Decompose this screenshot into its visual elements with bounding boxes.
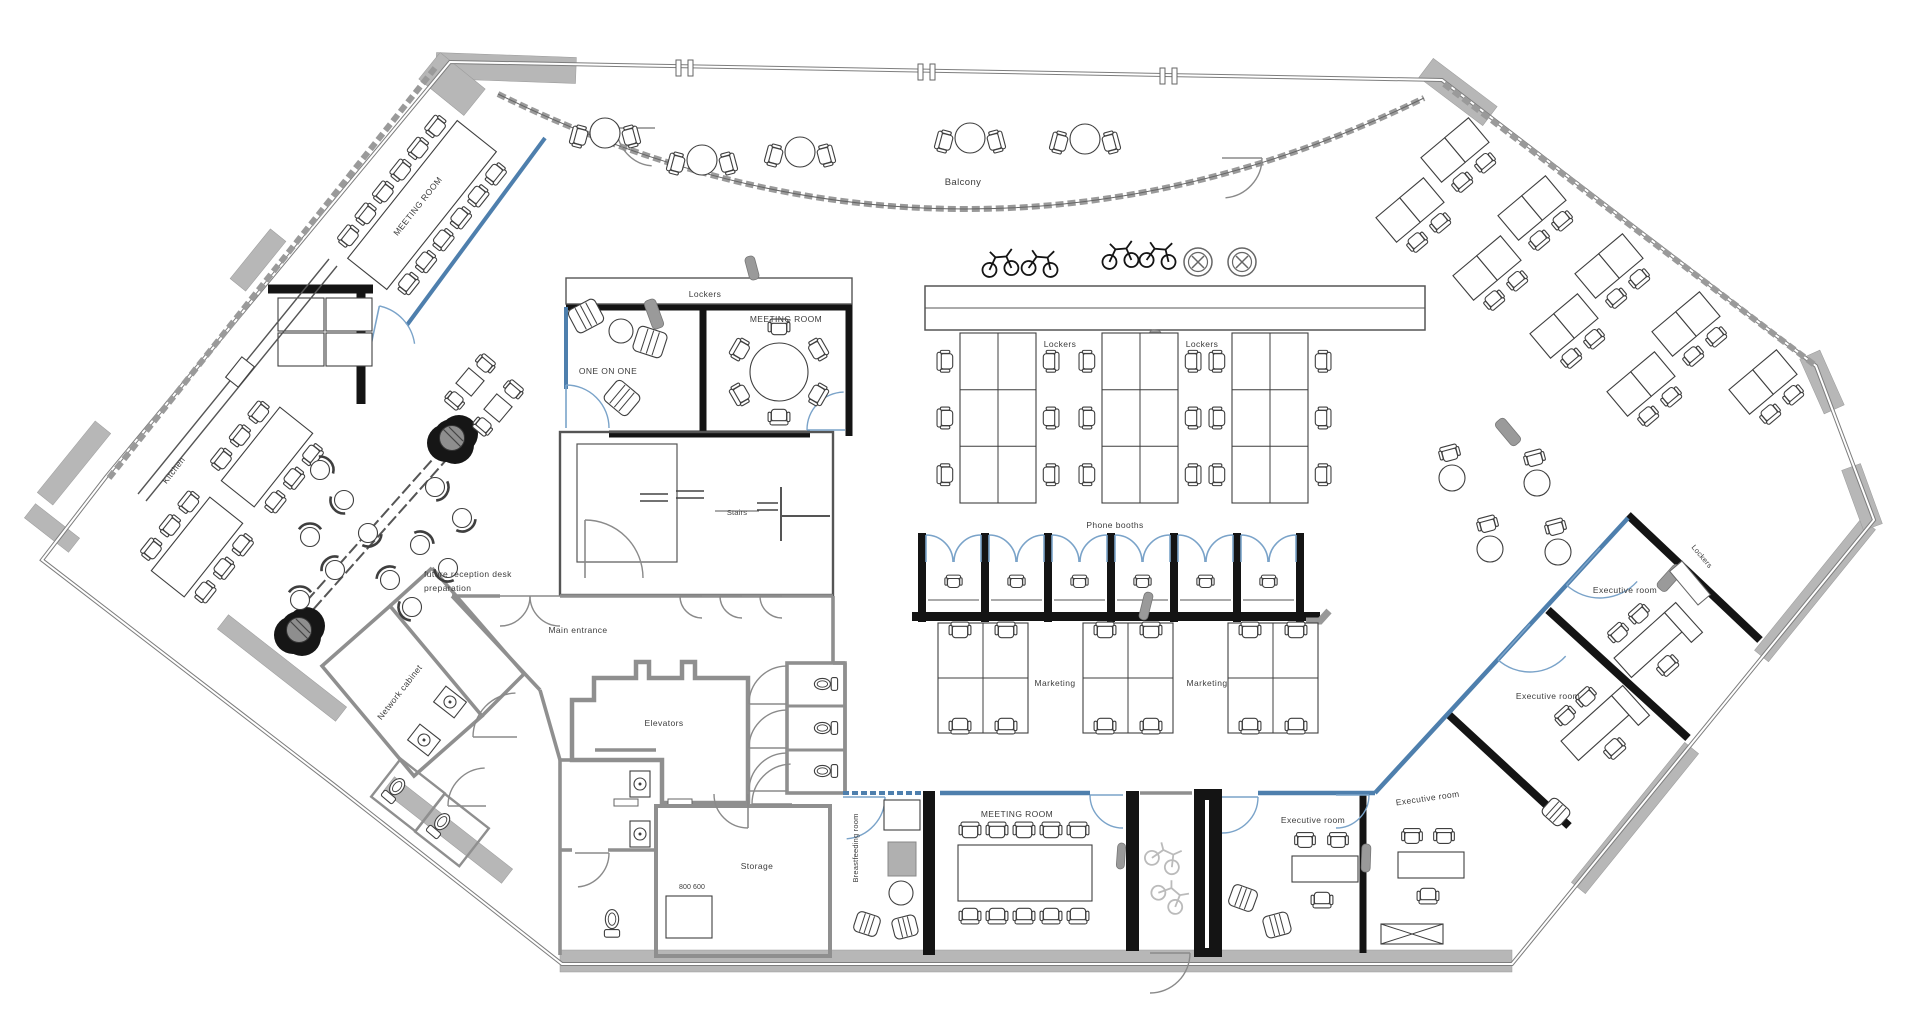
balcony-table <box>569 118 642 149</box>
label-phone-booths: Phone booths <box>1086 520 1143 530</box>
booth-divider <box>1044 533 1052 622</box>
booth-doors <box>1178 535 1233 562</box>
booth-divider <box>1233 533 1241 622</box>
chair <box>666 151 687 176</box>
label-executive-east-top: Executive room <box>1593 585 1657 595</box>
wall-meeting-south-right <box>1126 791 1139 951</box>
chair <box>501 378 525 401</box>
bicycle-icon <box>981 248 1019 277</box>
cabinet <box>326 298 372 331</box>
chair <box>1658 384 1683 409</box>
chair <box>1654 652 1681 678</box>
bicycle-icon <box>1101 240 1139 269</box>
chair <box>1581 326 1606 351</box>
folded-table-icon <box>1228 248 1256 276</box>
lounge-stool <box>426 478 449 501</box>
chair <box>1603 286 1628 311</box>
chair <box>1295 833 1316 848</box>
chair <box>1703 324 1728 349</box>
chair <box>1757 402 1782 427</box>
chair <box>1260 575 1277 587</box>
chair <box>995 622 1017 638</box>
desk-pair <box>1376 178 1457 258</box>
cabinet <box>326 333 372 366</box>
chair <box>1476 514 1500 534</box>
booth-doors <box>989 535 1044 562</box>
chair <box>937 407 953 429</box>
chair <box>816 143 837 168</box>
chair <box>1626 266 1651 291</box>
label-marketing-right: Marketing <box>1187 678 1228 688</box>
chair <box>1434 829 1455 844</box>
wall-band <box>1842 464 1883 531</box>
window-notch <box>1172 68 1177 84</box>
wall-band <box>230 229 286 291</box>
door-leaf <box>744 255 760 281</box>
label-network-cabinet: Network cabinet <box>375 663 424 722</box>
label-lockers-top: Lockers <box>689 289 722 299</box>
chair <box>1680 344 1705 369</box>
chair <box>1239 718 1261 734</box>
label-marketing-left: Marketing <box>1035 678 1076 688</box>
door-arc <box>714 794 748 828</box>
elevators-room <box>572 662 748 803</box>
wall-band <box>383 777 512 884</box>
balcony-table <box>1049 124 1122 155</box>
chair <box>728 336 752 363</box>
chair <box>728 381 752 408</box>
bicycle-icon <box>1139 240 1177 269</box>
chair <box>1079 407 1095 429</box>
label-balcony: Balcony <box>945 177 982 188</box>
balcony-table <box>764 137 837 168</box>
chair <box>1067 908 1089 924</box>
couch <box>884 800 920 830</box>
desk-pair <box>1729 350 1810 430</box>
chair <box>937 350 953 372</box>
desk-pair <box>1652 292 1733 372</box>
chair <box>1040 908 1062 924</box>
lounge-stool <box>322 557 345 580</box>
chair <box>1043 350 1059 372</box>
chair <box>1043 407 1059 429</box>
desk-bank <box>1209 333 1331 503</box>
chair <box>959 908 981 924</box>
toilet-icon <box>604 910 619 938</box>
chair <box>1101 130 1122 155</box>
chair <box>1544 517 1568 537</box>
chair <box>1134 575 1151 587</box>
desk-pair <box>1530 294 1611 374</box>
stairs-core <box>577 444 677 562</box>
floor-plan-svg: MEETING ROOM Balcony Lockers MEETING ROO… <box>0 0 1920 1035</box>
label-stairs: Stairs <box>727 508 747 517</box>
booth-doors <box>926 535 981 562</box>
desk-pair <box>1421 118 1502 198</box>
chair <box>1526 228 1551 253</box>
lounge-stool <box>330 491 353 514</box>
door-leaf <box>1361 844 1371 872</box>
chair <box>986 129 1007 154</box>
chair <box>949 622 971 638</box>
plant <box>427 415 478 464</box>
door-leaf <box>1494 417 1522 448</box>
door-arc <box>720 596 742 618</box>
chair <box>1185 350 1201 372</box>
armchair <box>1227 883 1259 912</box>
sink-icon <box>630 771 650 797</box>
door-leaf <box>1116 843 1126 869</box>
chair <box>718 151 739 176</box>
chair <box>1472 150 1497 175</box>
chair <box>1209 350 1225 372</box>
chair <box>1780 382 1805 407</box>
chair <box>1043 464 1059 486</box>
label-executive-south-right: Executive room <box>1395 789 1460 808</box>
booth-divider <box>918 533 926 622</box>
floor-plan: MEETING ROOM Balcony Lockers MEETING ROO… <box>0 0 1920 1035</box>
bicycle-icon <box>1148 874 1192 917</box>
lounge-stool <box>377 567 400 590</box>
chair <box>1427 210 1452 235</box>
storage-box <box>666 896 712 938</box>
label-main-entrance: Main entrance <box>548 625 607 635</box>
chair <box>1040 822 1062 838</box>
chair <box>959 822 981 838</box>
crate-crossed <box>1381 924 1443 944</box>
meeting-room-south-furniture <box>958 822 1092 924</box>
chair <box>1606 620 1631 645</box>
desk-pair <box>1498 176 1579 256</box>
chair <box>934 129 955 154</box>
lounge-stool <box>299 523 321 546</box>
chair <box>1008 575 1025 587</box>
exec-desk <box>1292 856 1358 882</box>
door-arc <box>566 385 609 428</box>
curved-glass-facade <box>498 94 1424 209</box>
door-arc <box>760 596 782 618</box>
chair <box>1140 622 1162 638</box>
chair <box>1079 350 1095 372</box>
wall <box>540 690 560 760</box>
side-table <box>609 319 633 343</box>
label-lockers-mid-left: Lockers <box>1044 339 1077 349</box>
marketing-desk-bank <box>1083 622 1173 734</box>
chair <box>1140 718 1162 734</box>
lounge-stool <box>411 532 434 555</box>
door-arc <box>749 666 787 704</box>
label-future-reception-2: preparation <box>424 583 471 593</box>
round-table <box>1477 536 1503 562</box>
label-breastfeeding-room: Breastfeeding room <box>851 813 860 882</box>
chair <box>1185 464 1201 486</box>
chair <box>1626 602 1651 627</box>
chair <box>1013 908 1035 924</box>
sink-icon <box>630 821 650 847</box>
chair <box>1079 464 1095 486</box>
label-elevators: Elevators <box>644 718 683 728</box>
window-notch <box>918 64 923 80</box>
toilet-icon <box>814 722 837 735</box>
exec-desk <box>1398 852 1464 878</box>
lounge-stool <box>359 524 382 547</box>
lounge-stool <box>289 586 311 609</box>
round-table <box>1524 470 1550 496</box>
chair <box>1094 718 1116 734</box>
marketing-desk-bank <box>1228 622 1318 734</box>
door-arc <box>749 710 787 748</box>
chair <box>1315 350 1331 372</box>
label-future-reception-1: future reception desk <box>424 569 512 579</box>
shell-layer <box>42 60 1874 964</box>
desk-pair <box>1607 352 1688 432</box>
door-arc <box>680 596 702 618</box>
chair <box>1185 407 1201 429</box>
chair <box>1209 464 1225 486</box>
chair <box>1239 622 1261 638</box>
chair <box>1601 735 1628 761</box>
chair <box>1209 407 1225 429</box>
label-storage: Storage <box>741 861 774 871</box>
chair <box>949 718 971 734</box>
bicycle-icon <box>1143 838 1187 877</box>
door-arc <box>843 797 885 839</box>
chair <box>1504 268 1529 293</box>
chair <box>986 908 1008 924</box>
label-kitchen: Kitchen <box>160 455 187 486</box>
exec-cluster <box>1545 668 1655 777</box>
booth-doors <box>1241 535 1296 562</box>
chair <box>806 381 830 408</box>
label-meeting-room-center: MEETING ROOM <box>750 314 822 324</box>
chair <box>1311 892 1333 908</box>
chair <box>1285 622 1307 638</box>
chair <box>1328 833 1349 848</box>
kitchen-table <box>135 484 259 610</box>
wall-breastfeeding-right <box>923 791 935 955</box>
armchair <box>891 914 919 940</box>
armchair <box>602 378 642 417</box>
folded-table-icon <box>1184 248 1212 276</box>
label-executive-south-left: Executive room <box>1281 815 1345 825</box>
chair <box>1523 448 1547 468</box>
booth-doors <box>1115 535 1170 562</box>
outer-wall <box>42 62 1874 964</box>
desk-bank <box>1079 333 1201 503</box>
chair <box>1417 888 1439 904</box>
cabinet-gray <box>888 842 916 876</box>
armchair <box>632 325 669 359</box>
chair <box>945 575 962 587</box>
chair <box>473 352 497 375</box>
label-lockers-east: Lockers <box>1690 543 1715 570</box>
desk-pair <box>1453 236 1534 316</box>
label-one-on-one: ONE ON ONE <box>579 366 637 376</box>
door-arc <box>500 596 530 626</box>
wall-band-bottom <box>560 950 1512 972</box>
window-notch <box>930 64 935 80</box>
side-table <box>889 881 913 905</box>
floor-layer <box>24 53 1882 972</box>
chair <box>1315 464 1331 486</box>
marketing-desk-bank <box>938 622 1028 734</box>
chair <box>1013 822 1035 838</box>
cabinet <box>278 298 324 331</box>
label-lockers-mid-right: Lockers <box>1186 339 1219 349</box>
exec-cluster <box>1598 585 1708 694</box>
door-arc <box>575 853 609 887</box>
booth-divider <box>1296 533 1304 622</box>
chair <box>1553 703 1578 728</box>
booth-divider <box>1170 533 1178 622</box>
booth-divider <box>981 533 989 622</box>
window-notch <box>1160 68 1165 84</box>
balcony-table <box>934 123 1007 154</box>
label-meeting-room-south: MEETING ROOM <box>981 809 1053 819</box>
chair <box>1049 130 1070 155</box>
furniture-layer <box>135 108 1810 944</box>
desk-pair <box>1575 234 1656 314</box>
stairs-room <box>560 432 833 595</box>
door-arc <box>585 520 643 578</box>
armchair <box>1262 911 1292 939</box>
wardrobe-slot <box>1205 800 1209 948</box>
chair <box>986 822 1008 838</box>
desk-bank <box>937 333 1059 503</box>
balcony-table <box>666 145 739 176</box>
bicycle-icon <box>1021 248 1059 277</box>
chair <box>937 464 953 486</box>
cabinet <box>278 333 324 366</box>
chair <box>1558 346 1583 371</box>
outer-wall-inner <box>42 62 1874 964</box>
window-notch <box>688 60 693 76</box>
chair <box>1549 208 1574 233</box>
door-arc <box>370 306 415 350</box>
chair <box>806 336 830 363</box>
round-table <box>1439 465 1465 491</box>
round-table <box>1545 539 1571 565</box>
chair <box>1635 404 1660 429</box>
toilet-icon <box>814 765 837 778</box>
round-meeting-table <box>750 343 808 401</box>
door-arc <box>1222 797 1258 833</box>
door-arc <box>1498 624 1566 672</box>
chair <box>1315 407 1331 429</box>
chair <box>1481 288 1506 313</box>
chair <box>1449 170 1474 195</box>
chair <box>1197 575 1214 587</box>
chair <box>1402 829 1423 844</box>
kitchen-table <box>205 394 329 520</box>
sink-icon <box>408 724 441 756</box>
chair <box>768 409 790 425</box>
window-notch <box>676 60 681 76</box>
kitchen-sink <box>226 357 255 387</box>
booth-doors <box>1052 535 1107 562</box>
chair <box>1438 443 1462 463</box>
elevator-door <box>614 799 638 806</box>
lounge-stool <box>399 598 422 621</box>
door-arc <box>530 596 560 626</box>
wall-band <box>37 421 110 505</box>
booth-back-wall <box>912 612 1320 621</box>
plant <box>274 607 325 656</box>
armchair <box>852 910 881 937</box>
label-executive-east-mid: Executive room <box>1516 691 1580 701</box>
toilet-icon <box>814 678 837 691</box>
booth-divider <box>1107 533 1115 622</box>
chair <box>995 718 1017 734</box>
chair <box>764 143 785 168</box>
chair <box>1094 622 1116 638</box>
chair <box>443 389 467 412</box>
chair <box>1404 230 1429 255</box>
door-arc <box>1090 795 1123 828</box>
lounge-stool <box>453 509 476 532</box>
chair <box>1285 718 1307 734</box>
chair <box>1067 822 1089 838</box>
chair <box>1071 575 1088 587</box>
label-storage-note: 800 600 <box>679 884 705 891</box>
